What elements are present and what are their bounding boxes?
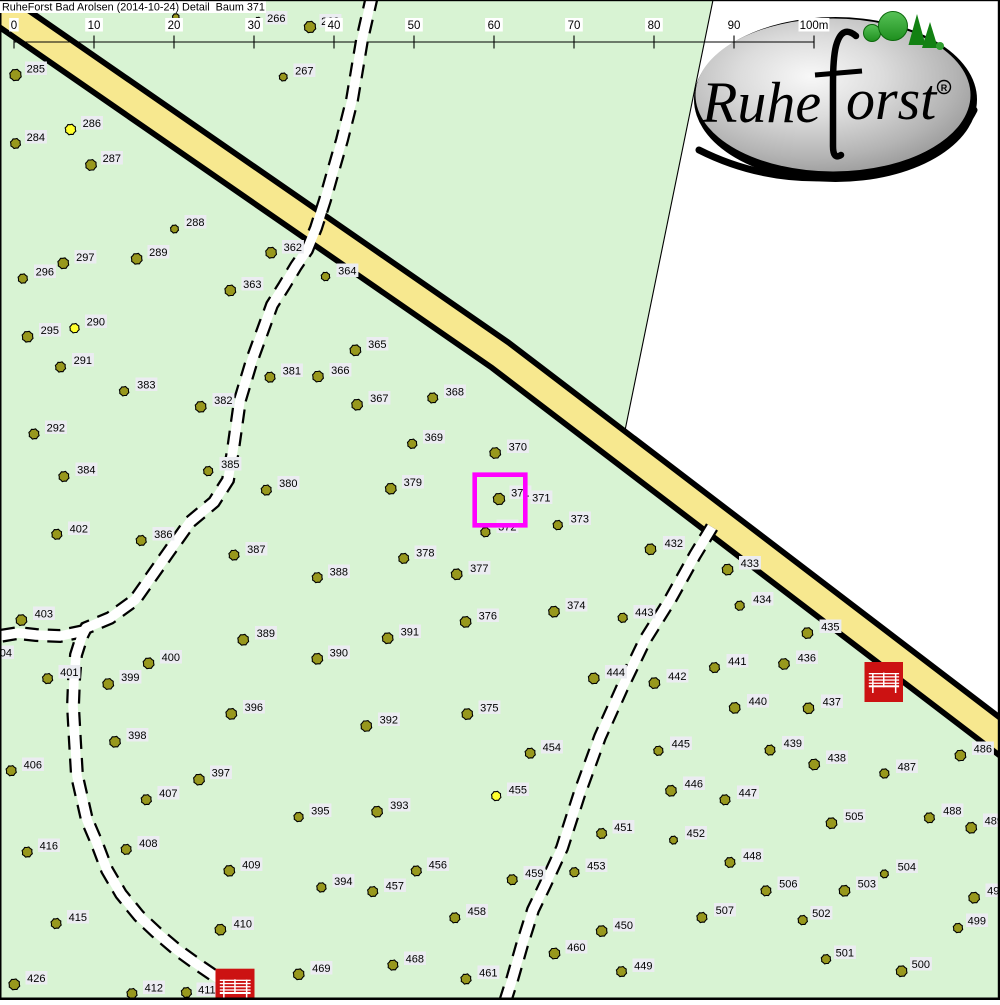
svg-text:503: 503: [858, 878, 876, 890]
svg-text:445: 445: [672, 738, 690, 750]
svg-text:486: 486: [974, 743, 992, 755]
svg-text:389: 389: [257, 628, 275, 640]
svg-text:384: 384: [77, 464, 95, 476]
svg-text:437: 437: [823, 696, 841, 708]
svg-text:394: 394: [334, 876, 352, 888]
svg-text:RuheForst Bad Arolsen (2014-10: RuheForst Bad Arolsen (2014-10-24) Detai…: [2, 2, 265, 14]
svg-text:380: 380: [279, 478, 297, 490]
svg-text:291: 291: [74, 355, 92, 367]
svg-text:377: 377: [470, 563, 488, 575]
svg-text:399: 399: [121, 672, 139, 684]
svg-text:100m: 100m: [800, 20, 829, 32]
svg-text:292: 292: [47, 422, 65, 434]
svg-text:461: 461: [479, 967, 497, 979]
svg-text:295: 295: [41, 325, 59, 337]
svg-text:439: 439: [784, 738, 802, 750]
svg-text:386: 386: [154, 529, 172, 541]
svg-text:504: 504: [898, 861, 916, 873]
svg-text:457: 457: [386, 880, 404, 892]
svg-text:369: 369: [425, 432, 443, 444]
svg-text:392: 392: [380, 714, 398, 726]
svg-text:289: 289: [149, 247, 167, 259]
svg-text:487: 487: [898, 761, 916, 773]
svg-text:20: 20: [168, 20, 181, 32]
svg-text:454: 454: [543, 742, 561, 754]
svg-text:455: 455: [509, 784, 527, 796]
svg-text:435: 435: [821, 621, 839, 633]
svg-text:376: 376: [479, 610, 497, 622]
svg-text:403: 403: [35, 608, 53, 620]
svg-text:440: 440: [749, 696, 767, 708]
svg-text:374: 374: [567, 600, 585, 612]
svg-text:444: 444: [607, 667, 625, 679]
svg-text:410: 410: [234, 918, 252, 930]
svg-text:286: 286: [83, 118, 101, 130]
svg-text:433: 433: [741, 558, 759, 570]
svg-text:0: 0: [11, 20, 17, 32]
svg-text:459: 459: [525, 868, 543, 880]
svg-text:489: 489: [985, 815, 1000, 827]
svg-text:469: 469: [312, 963, 330, 975]
svg-text:506: 506: [779, 878, 797, 890]
svg-text:364: 364: [338, 265, 356, 277]
svg-text:366: 366: [331, 365, 349, 377]
svg-text:378: 378: [416, 547, 434, 559]
svg-text:505: 505: [845, 811, 863, 823]
svg-text:375: 375: [480, 702, 498, 714]
svg-text:379: 379: [404, 477, 422, 489]
svg-text:70: 70: [568, 20, 581, 32]
svg-text:40: 40: [328, 20, 341, 32]
svg-text:393: 393: [390, 800, 408, 812]
svg-text:447: 447: [739, 787, 757, 799]
svg-text:orst: orst: [846, 67, 938, 132]
svg-text:488: 488: [943, 805, 961, 817]
svg-text:398: 398: [128, 730, 146, 742]
svg-text:388: 388: [330, 566, 348, 578]
svg-text:382: 382: [214, 395, 232, 407]
svg-text:363: 363: [243, 279, 261, 291]
svg-text:404: 404: [0, 647, 12, 659]
svg-text:408: 408: [139, 838, 157, 850]
svg-text:387: 387: [247, 544, 265, 556]
svg-text:456: 456: [429, 859, 447, 871]
svg-text:502: 502: [812, 908, 830, 920]
svg-text:288: 288: [186, 217, 204, 229]
svg-text:396: 396: [245, 702, 263, 714]
svg-text:451: 451: [614, 822, 632, 834]
svg-text:426: 426: [27, 973, 45, 985]
svg-text:401: 401: [60, 667, 78, 679]
svg-text:R: R: [941, 83, 948, 93]
svg-text:499: 499: [968, 915, 986, 927]
svg-text:453: 453: [587, 860, 605, 872]
svg-text:449: 449: [634, 960, 652, 972]
svg-text:441: 441: [728, 656, 746, 668]
svg-text:290: 290: [87, 316, 105, 328]
svg-text:438: 438: [828, 752, 846, 764]
svg-text:446: 446: [685, 778, 703, 790]
svg-text:468: 468: [406, 953, 424, 965]
svg-text:Ruhe: Ruhe: [701, 70, 821, 135]
svg-text:400: 400: [162, 652, 180, 664]
svg-text:365: 365: [368, 339, 386, 351]
svg-text:501: 501: [836, 947, 854, 959]
svg-text:381: 381: [283, 365, 301, 377]
svg-text:397: 397: [212, 767, 230, 779]
svg-text:432: 432: [665, 538, 683, 550]
svg-text:60: 60: [488, 20, 501, 32]
svg-text:371: 371: [532, 492, 550, 504]
svg-text:297: 297: [76, 252, 94, 264]
svg-text:284: 284: [27, 132, 45, 144]
svg-text:285: 285: [27, 63, 45, 75]
svg-text:412: 412: [145, 982, 163, 994]
svg-text:434: 434: [753, 594, 771, 606]
svg-text:373: 373: [571, 513, 589, 525]
svg-text:50: 50: [408, 20, 421, 32]
svg-text:385: 385: [221, 459, 239, 471]
svg-text:10: 10: [88, 20, 101, 32]
svg-text:436: 436: [798, 652, 816, 664]
svg-text:415: 415: [69, 912, 87, 924]
svg-text:402: 402: [70, 523, 88, 535]
svg-text:507: 507: [716, 905, 734, 917]
svg-text:266: 266: [267, 13, 285, 25]
svg-text:287: 287: [103, 153, 121, 165]
svg-text:391: 391: [401, 626, 419, 638]
svg-text:458: 458: [468, 906, 486, 918]
svg-text:460: 460: [567, 942, 585, 954]
svg-text:362: 362: [284, 242, 302, 254]
svg-text:448: 448: [743, 850, 761, 862]
svg-text:367: 367: [370, 393, 388, 405]
svg-text:368: 368: [446, 386, 464, 398]
svg-text:407: 407: [159, 788, 177, 800]
svg-text:30: 30: [248, 20, 261, 32]
svg-text:500: 500: [912, 959, 930, 971]
svg-text:443: 443: [635, 607, 653, 619]
svg-text:383: 383: [137, 379, 155, 391]
svg-text:267: 267: [295, 65, 313, 77]
svg-text:406: 406: [24, 759, 42, 771]
svg-text:409: 409: [242, 859, 260, 871]
svg-text:296: 296: [36, 266, 54, 278]
svg-text:80: 80: [648, 20, 661, 32]
svg-text:442: 442: [668, 671, 686, 683]
svg-text:450: 450: [615, 920, 633, 932]
svg-text:395: 395: [311, 805, 329, 817]
svg-text:90: 90: [728, 20, 741, 32]
svg-text:370: 370: [509, 441, 527, 453]
svg-text:416: 416: [40, 840, 58, 852]
svg-text:452: 452: [687, 828, 705, 840]
svg-text:411: 411: [198, 984, 216, 996]
svg-text:390: 390: [330, 647, 348, 659]
